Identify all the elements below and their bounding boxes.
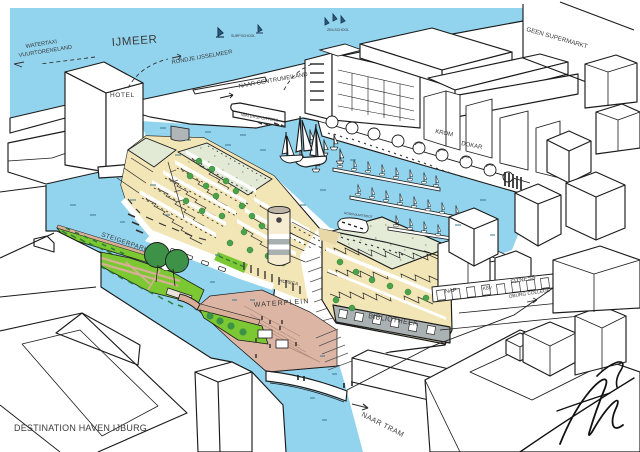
svg-text:KBV: KBV: [483, 285, 492, 291]
svg-text:NAP: NAP: [445, 288, 458, 295]
svg-text:ZEILSCHOOL: ZEILSCHOOL: [327, 28, 349, 32]
svg-text:HOTEL: HOTEL: [110, 92, 135, 99]
svg-text:SURFSCHOOL: SURFSCHOOL: [231, 34, 255, 38]
svg-text:DESTINATION HAVEN IJBURG: DESTINATION HAVEN IJBURG: [14, 423, 147, 433]
